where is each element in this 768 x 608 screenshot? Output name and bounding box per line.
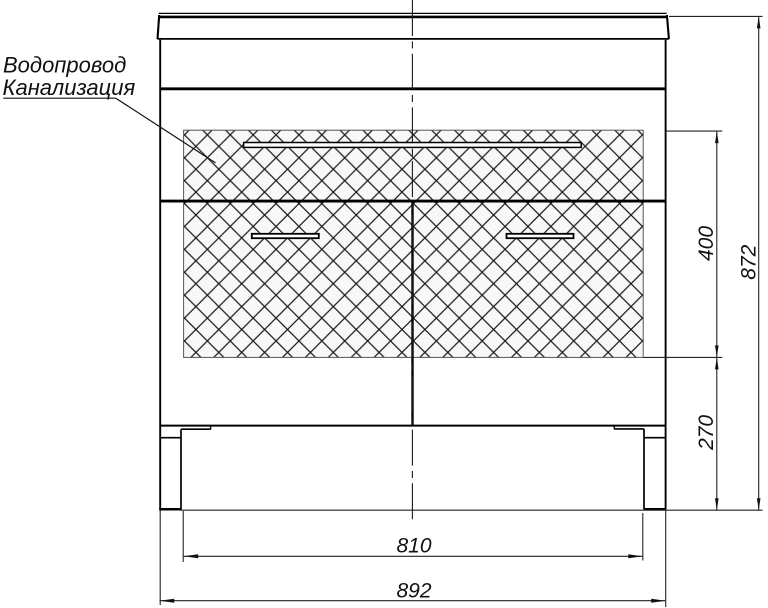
svg-text:400: 400 — [695, 226, 718, 261]
svg-text:Канализация: Канализация — [3, 75, 136, 100]
svg-text:810: 810 — [396, 535, 431, 558]
svg-text:872: 872 — [738, 244, 761, 279]
svg-text:892: 892 — [396, 580, 431, 603]
svg-text:270: 270 — [695, 415, 718, 451]
svg-text:Водопровод: Водопровод — [3, 53, 126, 78]
